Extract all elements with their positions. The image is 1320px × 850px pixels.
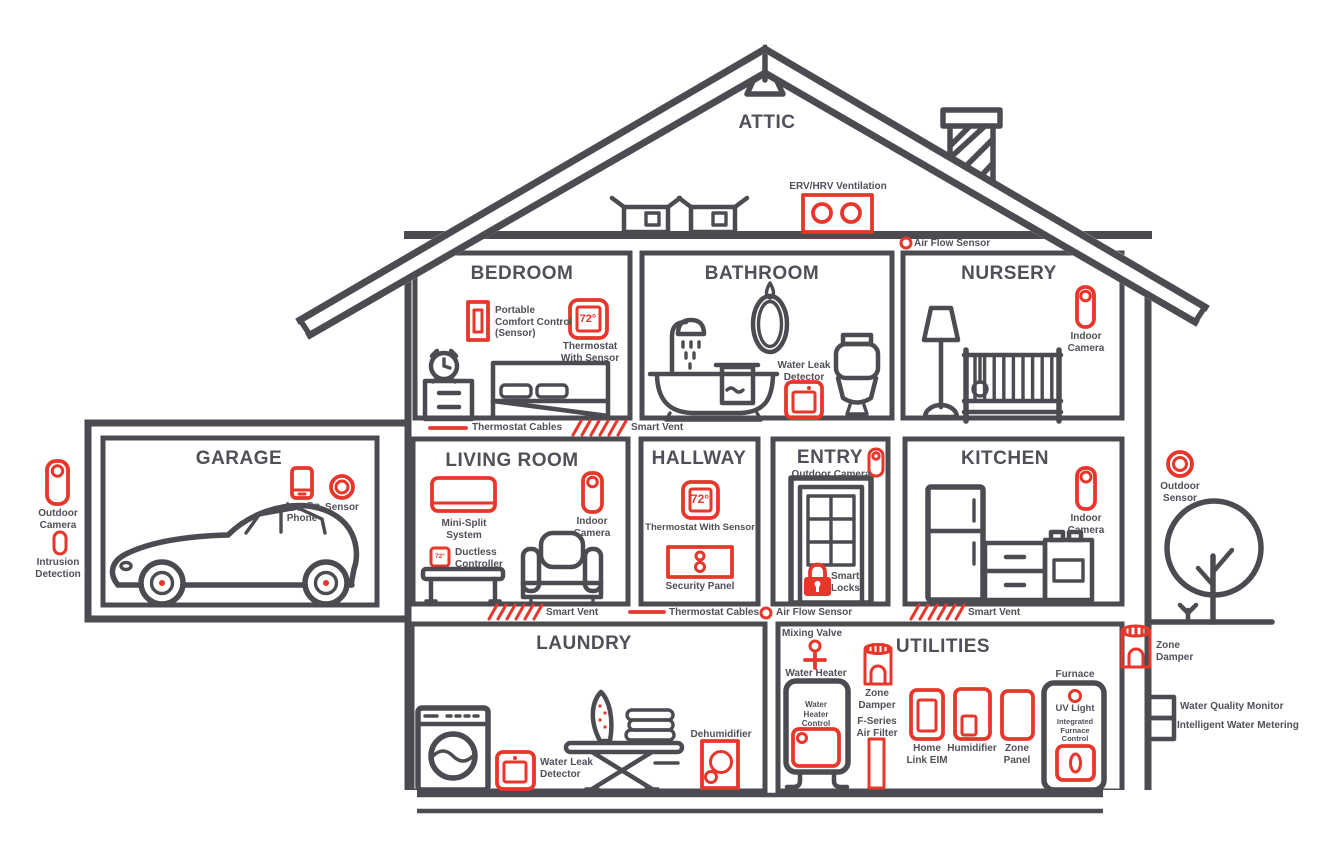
label-humidifier: Humidifier [947,743,996,755]
label-air-flow-mid: Air Flow Sensor [776,607,852,619]
label-app-on-phone: App On Phone [284,501,320,524]
label-water-leak-laundry: Water Leak Detector [540,757,593,780]
label-water-heater-control: Water Heater Control [802,700,830,729]
label-smart-vent-living: Smart Vent [546,607,598,619]
smart-vent-living-icon [489,605,542,619]
tree-icon [1152,501,1272,622]
dehumidifier-icon [702,741,738,788]
coffee-table-icon [423,569,503,601]
room-title-nursery: NURSERY [961,264,1057,283]
uv-light-icon [1070,691,1081,702]
ductless-controller-reading: 72° [435,553,445,560]
kitchen-cabinet-icon [985,543,1045,600]
bedroom-thermostat-reading: 72° [580,313,597,326]
folded-towels-icon [626,710,674,740]
bathtub-shower-icon [650,320,777,420]
label-garage-sensor: Sensor [325,502,359,514]
room-title-living-room: LIVING ROOM [445,451,578,470]
label-intrusion-detection: Intrusion Detection [35,557,81,580]
security-panel-icon [668,547,732,577]
room-title-bedroom: BEDROOM [471,264,574,283]
bathroom-water-leak-detector-icon [786,382,822,418]
label-zone-damper-utilities: Zone Damper [858,688,895,711]
air-flow-sensor-top-icon [901,238,911,248]
mini-split-icon [432,478,495,511]
water-heater-control-icon [793,729,839,766]
label-dehumidifier: Dehumidifier [690,729,751,741]
toilet-icon [836,335,878,414]
app-on-phone-icon [292,468,312,498]
label-air-flow-top: Air Flow Sensor [914,238,990,250]
zone-panel-icon [1002,691,1033,739]
label-indoor-camera-living: Indoor Camera [574,516,611,539]
label-water-heater: Water Heater [785,668,846,680]
erv-hrv-ventilation-icon [803,195,872,232]
living-indoor-camera-icon [583,473,602,512]
armchair-icon [523,533,601,603]
stove-icon [1045,532,1092,600]
smart-lock-icon [804,565,831,597]
label-smart-vent-kitchen: Smart Vent [968,607,1020,619]
label-mini-split: Mini-Split System [442,518,487,541]
label-outdoor-camera-entry: Outdoor Camera [792,469,871,481]
mirror-icon [753,283,787,352]
roof [297,46,1208,338]
label-thermostat-cables-lower: Thermostat Cables [669,607,759,619]
label-water-metering: Intelligent Water Metering [1177,720,1299,732]
outdoor-camera-left-icon [47,461,68,504]
label-mixing-valve: Mixing Valve [782,628,842,640]
label-f-series-air-filter: F-Series Air Filter [856,716,897,739]
iron-icon [593,692,612,741]
air-flow-sensor-mid-icon [761,608,771,618]
label-indoor-camera-kitchen: Indoor Camera [1068,513,1105,536]
label-portable-comfort: Portable Comfort Control (Sensor) [495,305,572,340]
label-security-panel: Security Panel [666,581,735,593]
refrigerator-icon [928,487,983,600]
smart-home-diagram: ATTIC BEDROOM BATHROOM NURSERY GARAGE LI… [0,0,1320,850]
alarm-clock-icon [431,351,457,382]
label-water-quality: Water Quality Monitor [1180,701,1284,713]
bed-icon [493,363,608,418]
label-thermostat-cables-upper: Thermostat Cables [472,422,562,434]
label-outdoor-sensor: Outdoor Sensor [1160,481,1199,504]
washing-machine-icon [418,708,488,790]
intrusion-detection-icon [54,532,66,554]
room-title-kitchen: KITCHEN [961,449,1049,468]
f-series-air-filter-icon [869,739,884,788]
label-outdoor-camera-left: Outdoor Camera [38,508,77,531]
label-smart-vent-upper: Smart Vent [631,422,683,434]
room-title-attic: ATTIC [738,113,795,132]
room-title-bathroom: BATHROOM [705,264,819,283]
label-home-link-eim: Home Link EIM [906,743,947,766]
label-smart-locks: Smart Locks [831,571,860,594]
floor-lamp-icon [924,308,958,417]
laundry-water-leak-detector-icon [497,752,534,789]
label-thermostat-bedroom: Thermostat With Sensor [561,341,619,364]
crib-icon [964,350,1061,421]
mixing-valve-icon [805,641,825,668]
home-link-eim-icon [911,690,943,739]
kitchen-indoor-camera-icon [1077,468,1095,509]
storage-box-icon [612,198,747,232]
room-title-laundry: LAUNDRY [536,634,632,653]
label-zone-damper-right: Zone Damper [1156,640,1193,663]
nursery-indoor-camera-icon [1077,287,1094,327]
entry-outdoor-camera-icon [869,449,883,476]
garage-sensor-icon [331,476,353,498]
smart-vent-upper-icon [573,421,626,435]
room-title-utilities: UTILITIES [896,637,990,656]
zone-damper-utilities-icon [865,645,891,685]
room-title-entry: ENTRY [797,448,863,467]
label-uv-light: UV Light [1055,704,1094,715]
smart-vent-kitchen-icon [911,605,964,619]
label-erv-hrv: ERV/HRV Ventilation [789,181,886,193]
foundation [363,790,1157,830]
label-thermostat-hallway: Thermostat With Sensor [645,523,755,534]
label-furnace: Furnace [1056,669,1095,681]
room-title-hallway: HALLWAY [652,449,747,468]
humidifier-icon [955,689,990,739]
nightstand-icon [425,381,472,419]
label-ductless-controller: Ductless Controller [455,547,503,570]
integrated-furnace-control-icon [1057,746,1094,780]
label-furnace-control: Integrated Furnace Control [1057,718,1093,744]
hallway-thermostat-reading: 72° [691,493,709,507]
outdoor-sensor-right-icon [1168,452,1192,476]
room-title-garage: GARAGE [196,449,282,468]
water-meter-icon [1148,697,1174,739]
portable-comfort-control-icon [468,302,488,340]
label-zone-panel: Zone Panel [1004,743,1031,766]
label-indoor-camera-nursery: Indoor Camera [1068,331,1105,354]
label-water-leak-bathroom: Water Leak Detector [778,360,831,383]
